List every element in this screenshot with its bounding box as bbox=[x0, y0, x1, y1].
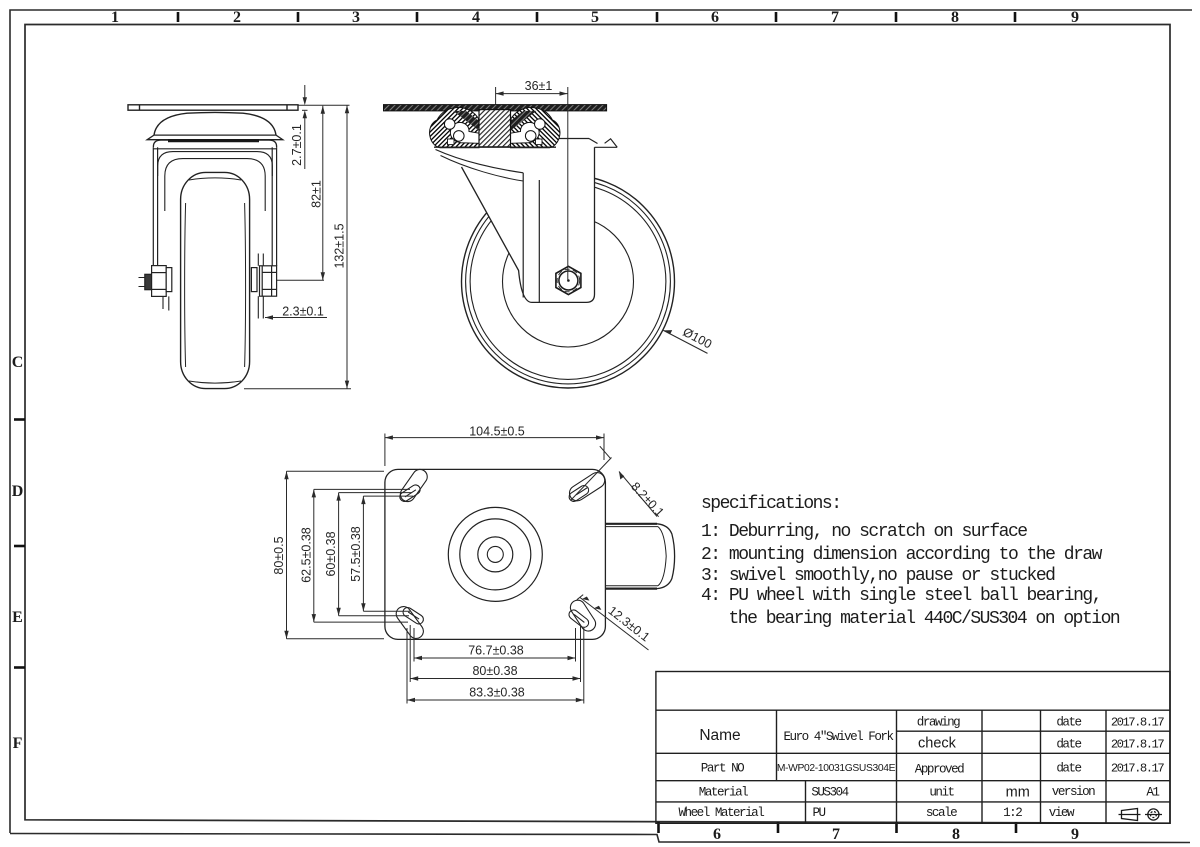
svg-text:Wheel Material: Wheel Material bbox=[678, 806, 764, 820]
svg-text:Approved: Approved bbox=[915, 763, 964, 777]
svg-text:date: date bbox=[1056, 738, 1081, 752]
svg-text:C: C bbox=[12, 354, 24, 371]
svg-text:4: 4 bbox=[472, 9, 480, 26]
svg-text:7: 7 bbox=[831, 9, 839, 26]
svg-text:80±0.5: 80±0.5 bbox=[272, 536, 286, 574]
svg-text:date: date bbox=[1056, 762, 1081, 776]
svg-text:F: F bbox=[13, 735, 23, 752]
svg-text:2: 2 bbox=[233, 9, 241, 26]
svg-text:scale: scale bbox=[926, 806, 957, 820]
svg-text:9: 9 bbox=[1071, 9, 1079, 26]
svg-text:36±1: 36±1 bbox=[525, 79, 553, 93]
svg-text:D: D bbox=[12, 483, 24, 500]
svg-text:Name: Name bbox=[699, 727, 740, 744]
svg-text:1:2: 1:2 bbox=[1003, 806, 1022, 820]
svg-text:A1: A1 bbox=[1146, 786, 1159, 800]
svg-text:the bearing material 440C/SUS3: the bearing material 440C/SUS304 on opti… bbox=[729, 609, 1120, 629]
svg-text:version: version bbox=[1052, 785, 1095, 799]
svg-text:2.3±0.1: 2.3±0.1 bbox=[282, 304, 324, 318]
svg-text:date: date bbox=[1056, 716, 1081, 730]
svg-text:9: 9 bbox=[1071, 826, 1079, 843]
svg-text:3: swivel smoothly,no pause or: 3: swivel smoothly,no pause or stucked bbox=[701, 566, 1055, 586]
svg-text:7: 7 bbox=[832, 826, 840, 843]
svg-text:4: PU wheel with single steel: 4: PU wheel with single steel ball beari… bbox=[701, 586, 1101, 606]
svg-text:6: 6 bbox=[713, 826, 721, 843]
svg-text:2.7±0.1: 2.7±0.1 bbox=[290, 124, 304, 166]
svg-text:3: 3 bbox=[352, 9, 360, 26]
svg-text:82±1: 82±1 bbox=[309, 180, 323, 208]
svg-text:SUS304: SUS304 bbox=[811, 786, 848, 800]
svg-text:57.5±0.38: 57.5±0.38 bbox=[349, 526, 363, 582]
svg-text:132±1.5: 132±1.5 bbox=[332, 223, 346, 268]
svg-text:E: E bbox=[12, 609, 23, 626]
svg-text:Part NO: Part NO bbox=[701, 762, 744, 776]
svg-text:2017.8.17: 2017.8.17 bbox=[1111, 716, 1165, 730]
svg-text:5: 5 bbox=[591, 9, 599, 26]
svg-text:2017.8.17: 2017.8.17 bbox=[1111, 762, 1165, 776]
svg-text:mm: mm bbox=[1006, 785, 1030, 801]
svg-text:drawing: drawing bbox=[917, 716, 960, 730]
svg-text:PU: PU bbox=[812, 806, 825, 820]
svg-text:M-WP02-10031GSUS304E: M-WP02-10031GSUS304E bbox=[777, 763, 896, 774]
svg-text:Euro 4″Swivel Fork: Euro 4″Swivel Fork bbox=[783, 730, 893, 744]
svg-text:76.7±0.38: 76.7±0.38 bbox=[468, 644, 524, 658]
svg-text:check: check bbox=[918, 736, 957, 752]
svg-text:8: 8 bbox=[951, 9, 959, 26]
svg-text:62.5±0.38: 62.5±0.38 bbox=[299, 527, 313, 583]
svg-text:80±0.38: 80±0.38 bbox=[472, 664, 517, 678]
svg-text:unit: unit bbox=[929, 786, 954, 800]
svg-text:1: Deburring, no scratch on su: 1: Deburring, no scratch on surface bbox=[701, 522, 1027, 542]
svg-text:2: mounting dimension accordin: 2: mounting dimension according to the d… bbox=[701, 545, 1103, 565]
svg-text:6: 6 bbox=[711, 9, 719, 26]
svg-text:2017.8.17: 2017.8.17 bbox=[1111, 738, 1165, 752]
svg-text:104.5±0.5: 104.5±0.5 bbox=[469, 424, 525, 438]
svg-text:60±0.38: 60±0.38 bbox=[324, 531, 338, 576]
svg-text:Material: Material bbox=[699, 786, 748, 800]
svg-text:8: 8 bbox=[952, 826, 960, 843]
svg-text:83.3±0.38: 83.3±0.38 bbox=[469, 686, 525, 700]
svg-text:specifications:: specifications: bbox=[701, 494, 841, 514]
svg-text:view: view bbox=[1049, 806, 1075, 820]
svg-text:1: 1 bbox=[111, 9, 119, 26]
